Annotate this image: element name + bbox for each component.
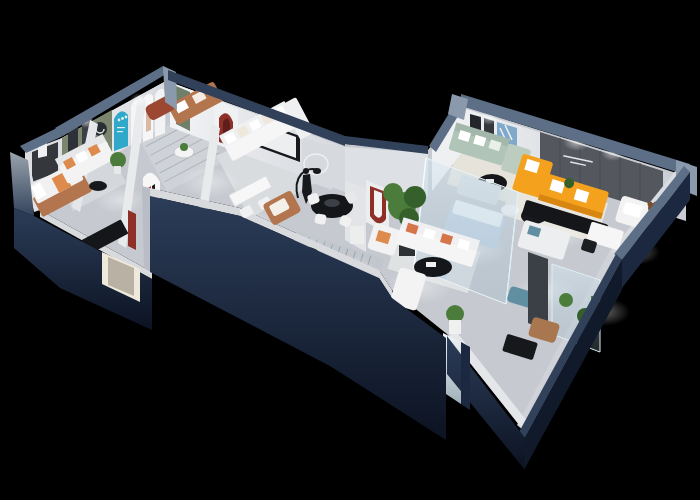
red-door-frame-accent	[128, 210, 136, 250]
entry-column-outer	[461, 342, 470, 410]
wall-spotlight	[130, 93, 150, 107]
white-pedestal	[350, 226, 364, 244]
case-plant	[559, 293, 573, 307]
red-u-arch-inner	[374, 190, 382, 218]
small-black-table	[89, 181, 107, 191]
render-canvas	[0, 0, 700, 500]
floorplan-render	[0, 0, 700, 500]
